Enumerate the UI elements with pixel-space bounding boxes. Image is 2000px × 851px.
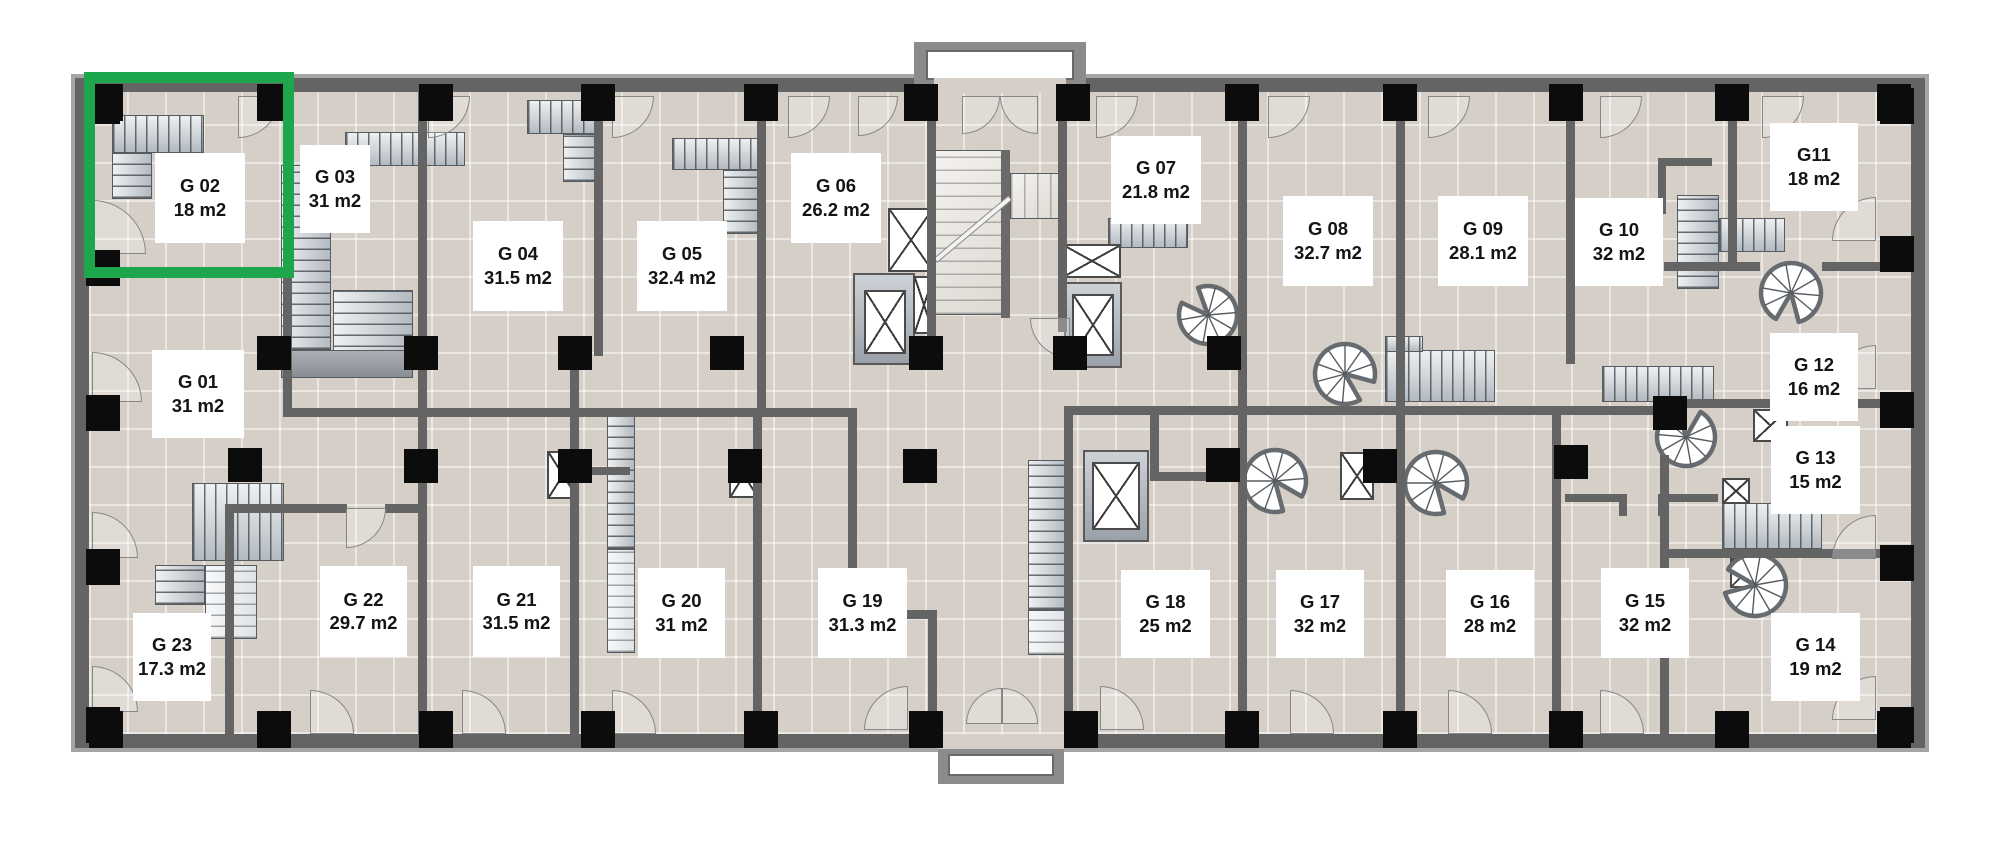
- unit-id: G 01: [178, 372, 218, 392]
- wall-37: [1619, 494, 1627, 516]
- stair-rail: [1001, 150, 1010, 318]
- unit-area: 31.5 m2: [483, 613, 551, 633]
- column-interior-2: [558, 336, 592, 370]
- unit-label-g-07[interactable]: G 07 21.8 m2: [1111, 136, 1201, 224]
- column-interior-14: [1653, 396, 1687, 430]
- unit-label-g-08[interactable]: G 08 32.7 m2: [1283, 196, 1373, 286]
- column-right-4: [1880, 707, 1914, 743]
- wall-5: [927, 92, 936, 367]
- column-interior-3: [710, 336, 744, 370]
- stairs-19: [192, 483, 284, 561]
- column-interior-13: [1363, 449, 1397, 483]
- unit-id: G 20: [661, 591, 701, 611]
- unit-id: G 21: [496, 590, 536, 610]
- spiral-stairs-icon: [1238, 444, 1312, 518]
- bottom-entrance-door: [948, 754, 1054, 776]
- column-interior-1: [404, 336, 438, 370]
- column-right-3: [1880, 545, 1914, 581]
- wall-39: [1658, 494, 1666, 516]
- unit-label-g-15[interactable]: G 15 32 m2: [1601, 568, 1689, 658]
- spiral-stairs-icon: [1309, 338, 1381, 410]
- top-entrance-opening: [934, 78, 1066, 93]
- unit-id: G 18: [1145, 592, 1185, 612]
- column-bottom-3: [581, 711, 615, 748]
- wall-2: [594, 92, 603, 356]
- unit-id: G 19: [842, 591, 882, 611]
- unit-label-g-17[interactable]: G 17 32 m2: [1276, 570, 1364, 658]
- unit-label-g-21[interactable]: G 21 31.5 m2: [473, 566, 560, 657]
- unit-id: G11: [1797, 145, 1831, 165]
- unit-id: G 08: [1308, 219, 1348, 239]
- unit-label-g-20[interactable]: G 20 31 m2: [638, 568, 725, 658]
- column-top-7: [1225, 84, 1259, 121]
- wall-31: [1150, 413, 1159, 479]
- column-interior-12: [1206, 448, 1240, 482]
- stairs-10: [1010, 173, 1060, 219]
- unit-id: G 14: [1795, 635, 1835, 655]
- unit-label-g-04[interactable]: G 04 31.5 m2: [473, 221, 563, 311]
- wall-34: [1396, 413, 1405, 734]
- unit-id: G 03: [315, 167, 355, 187]
- stairs-11: [1028, 460, 1066, 610]
- column-top-4: [744, 84, 778, 121]
- column-right-0: [1880, 88, 1914, 124]
- column-top-5: [904, 84, 938, 121]
- column-top-10: [1715, 84, 1749, 121]
- unit-label-g-13[interactable]: G 13 15 m2: [1771, 426, 1860, 514]
- column-bottom-8: [1383, 711, 1417, 748]
- unit-id: G 16: [1470, 592, 1510, 612]
- column-top-2: [419, 84, 453, 121]
- elevator-shaft-5: [1092, 462, 1140, 530]
- unit-label-g-10[interactable]: G 10 32 m2: [1575, 198, 1663, 286]
- unit-label-g-12[interactable]: G 12 16 m2: [1770, 333, 1858, 421]
- stair-landing: [281, 350, 413, 378]
- top-entrance-door: [926, 50, 1074, 80]
- column-bottom-10: [1715, 711, 1749, 748]
- unit-area: 17.3 m2: [138, 659, 206, 679]
- wall-23: [225, 504, 234, 734]
- unit-id: G 12: [1794, 355, 1834, 375]
- unit-label-g-03[interactable]: G 03 31 m2: [300, 145, 370, 233]
- unit-area: 16 m2: [1788, 379, 1840, 399]
- floor-plan-canvas: G 01 31 m2 G 02 18 m2 G 03 31 m2 G 04 31…: [0, 0, 2000, 851]
- unit-area: 29.7 m2: [330, 613, 398, 633]
- column-top-8: [1383, 84, 1417, 121]
- stairs-22: [607, 415, 635, 549]
- unit-area: 21.8 m2: [1122, 182, 1190, 202]
- column-right-1: [1880, 236, 1914, 272]
- unit-id: G 06: [816, 176, 856, 196]
- column-bottom-6: [1064, 711, 1098, 748]
- unit-area: 32 m2: [1619, 615, 1671, 635]
- column-right-2: [1880, 392, 1914, 428]
- unit-id: G 17: [1300, 592, 1340, 612]
- unit-label-g-16[interactable]: G 16 28 m2: [1446, 570, 1534, 658]
- column-interior-7: [228, 448, 262, 482]
- spiral-stairs-icon: [1718, 548, 1792, 622]
- unit-label-g-06[interactable]: G 06 26.2 m2: [791, 153, 881, 243]
- unit-label-g-22[interactable]: G 22 29.7 m2: [320, 566, 407, 657]
- unit-area: 31 m2: [172, 396, 224, 416]
- unit-area: 15 m2: [1789, 472, 1841, 492]
- wall-15: [1664, 262, 1760, 271]
- selected-unit-highlight[interactable]: [84, 72, 294, 278]
- column-interior-4: [909, 336, 943, 370]
- elevator-shaft-3: [1063, 244, 1121, 278]
- unit-label-g-09[interactable]: G 09 28.1 m2: [1438, 196, 1528, 286]
- unit-id: G 04: [498, 244, 538, 264]
- stairs-20: [155, 565, 205, 605]
- unit-label-g11[interactable]: G11 18 m2: [1770, 123, 1858, 211]
- column-interior-9: [558, 449, 592, 483]
- column-bottom-4: [744, 711, 778, 748]
- unit-id: G 09: [1463, 219, 1503, 239]
- column-bottom-9: [1549, 711, 1583, 748]
- unit-label-g-18[interactable]: G 18 25 m2: [1121, 570, 1210, 658]
- unit-id: G 22: [343, 590, 383, 610]
- wall-38: [1658, 494, 1718, 502]
- unit-id: G 13: [1795, 448, 1835, 468]
- unit-label-g-14[interactable]: G 14 19 m2: [1771, 613, 1860, 701]
- column-bottom-5: [909, 711, 943, 748]
- column-bottom-7: [1225, 711, 1259, 748]
- spiral-stairs-icon: [1755, 257, 1827, 329]
- unit-area: 25 m2: [1139, 616, 1191, 636]
- column-interior-5: [1053, 336, 1087, 370]
- unit-area: 31.3 m2: [829, 615, 897, 635]
- column-left-2: [86, 395, 120, 431]
- unit-label-g-05[interactable]: G 05 32.4 m2: [637, 221, 727, 311]
- unit-id: G 05: [662, 244, 702, 264]
- wall-9: [1566, 92, 1575, 364]
- column-left-4: [86, 707, 120, 743]
- wall-40: [1658, 158, 1712, 166]
- column-interior-11: [903, 449, 937, 483]
- wall-6: [1058, 92, 1067, 332]
- unit-area: 32 m2: [1294, 616, 1346, 636]
- column-bottom-2: [419, 711, 453, 748]
- unit-id: G 10: [1599, 220, 1639, 240]
- bottom-entrance-opening: [938, 734, 1064, 749]
- unit-area: 19 m2: [1789, 659, 1841, 679]
- unit-area: 32.7 m2: [1294, 243, 1362, 263]
- unit-area: 18 m2: [1788, 169, 1840, 189]
- column-bottom-1: [257, 711, 291, 748]
- unit-label-g-23[interactable]: G 23 17.3 m2: [133, 613, 211, 701]
- spiral-stairs-icon: [1399, 446, 1473, 520]
- column-interior-10: [728, 449, 762, 483]
- unit-label-g-01[interactable]: G 01 31 m2: [152, 350, 244, 438]
- elevator-shaft-10: [1722, 478, 1750, 504]
- unit-label-g-19[interactable]: G 19 31.3 m2: [818, 568, 907, 658]
- wall-36: [1565, 494, 1627, 502]
- column-left-3: [86, 549, 120, 585]
- column-interior-15: [1554, 445, 1588, 479]
- wall-21: [225, 504, 347, 513]
- stairs-7: [672, 138, 760, 170]
- unit-id: G 07: [1136, 158, 1176, 178]
- stairs-16: [1677, 195, 1719, 289]
- unit-id: G 23: [152, 635, 192, 655]
- column-top-3: [581, 84, 615, 121]
- wall-4: [757, 92, 766, 417]
- unit-area: 31 m2: [655, 615, 707, 635]
- column-interior-6: [1207, 336, 1241, 370]
- wall-30: [1064, 413, 1073, 734]
- column-top-9: [1549, 84, 1583, 121]
- stairs-23: [607, 549, 635, 653]
- wall-8: [1396, 92, 1405, 412]
- unit-area: 28.1 m2: [1449, 243, 1517, 263]
- column-interior-8: [404, 449, 438, 483]
- stairs-8: [723, 170, 760, 234]
- unit-id: G 15: [1625, 591, 1665, 611]
- elevator-shaft-1: [864, 290, 906, 354]
- column-top-6: [1056, 84, 1090, 121]
- unit-area: 31 m2: [309, 191, 361, 211]
- unit-area: 32.4 m2: [648, 268, 716, 288]
- unit-area: 32 m2: [1593, 244, 1645, 264]
- unit-area: 31.5 m2: [484, 268, 552, 288]
- stairs-12: [1028, 610, 1066, 655]
- column-interior-0: [257, 336, 291, 370]
- unit-area: 26.2 m2: [802, 200, 870, 220]
- unit-area: 28 m2: [1464, 616, 1516, 636]
